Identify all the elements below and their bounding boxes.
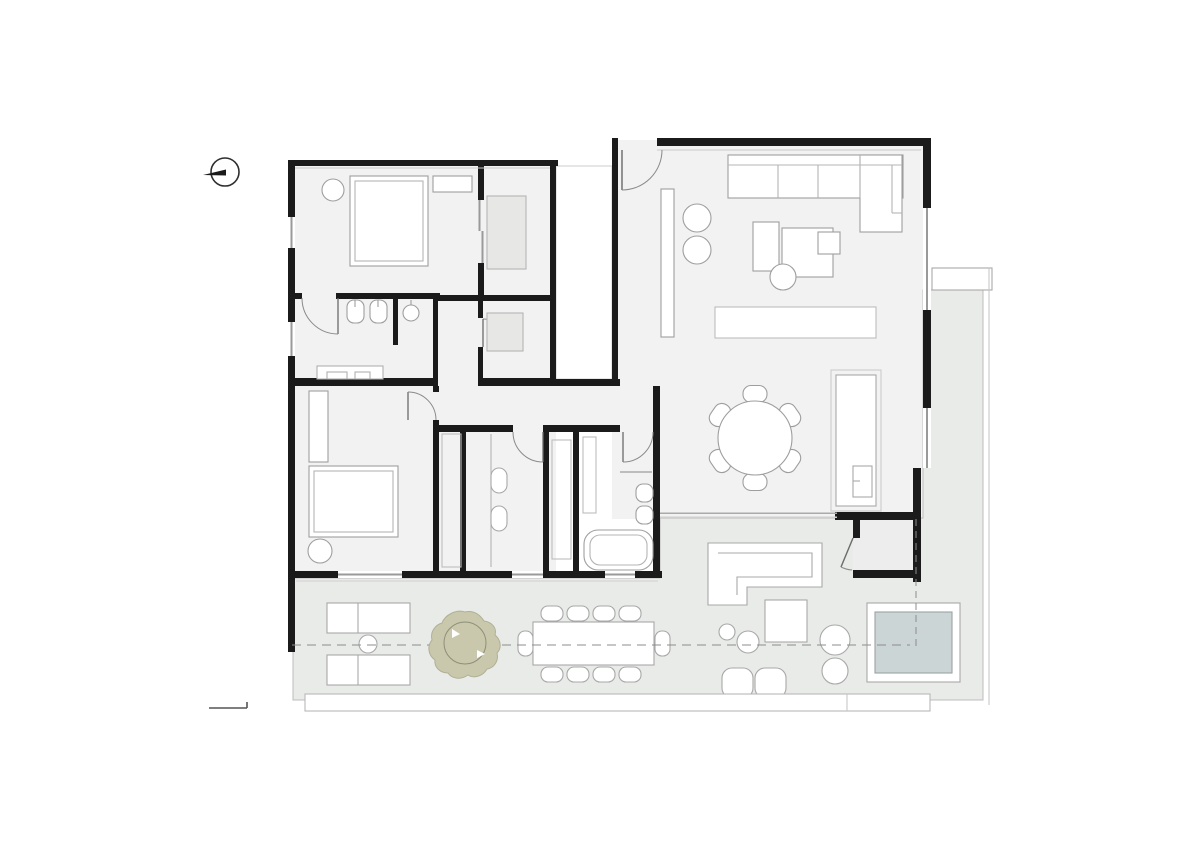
living-bench	[715, 307, 876, 338]
bed2-pouf	[308, 539, 332, 563]
wall-hall-south-a	[433, 425, 513, 432]
wall-band-east	[478, 378, 556, 386]
window-south-1-pane	[338, 574, 402, 576]
north-arrow-needle	[203, 170, 226, 176]
wall-vestibule-south	[853, 570, 921, 578]
terrace-dining-chair-e	[655, 631, 670, 656]
pool-water	[875, 612, 952, 673]
wall-vestibule-north	[835, 512, 915, 520]
bath1-toilet	[403, 305, 419, 321]
living-pouf1	[683, 204, 711, 232]
walkin-hanger2	[491, 506, 507, 531]
bed1-frame	[350, 176, 428, 266]
wall-wing2-east	[653, 386, 660, 571]
sliding-door-panel-a	[479, 200, 481, 231]
wall-smallroom-north	[478, 295, 556, 301]
sofa-chaise	[860, 155, 902, 232]
wall-living-west	[612, 138, 618, 386]
wall-bed2-east-a	[433, 386, 439, 392]
terrace-dining-chair-w	[518, 631, 533, 656]
window-west-2-pane	[291, 322, 293, 356]
floor-plan-drawing	[0, 0, 1200, 848]
lounger-pair-a	[327, 603, 410, 633]
wall-bed1-bath-stub	[295, 293, 302, 299]
vestibule-floor	[853, 519, 915, 572]
wall-bed2-east-b	[433, 420, 439, 572]
outdoor-stool-3	[820, 625, 850, 655]
outdoor-stool-1	[719, 624, 735, 640]
bedroom2-wardrobe	[309, 391, 328, 462]
bed1-nightstand	[322, 179, 344, 201]
wall-south-a	[288, 571, 338, 578]
floor-hallway	[438, 386, 660, 426]
bath2-sink	[636, 506, 653, 524]
terrace-dining-chair-b2	[567, 667, 589, 682]
window-east-2-pane	[926, 408, 928, 468]
floor-plan-sheet	[0, 0, 1200, 848]
window-south-2-pane	[512, 574, 543, 576]
dining-chair-s	[743, 474, 767, 491]
wall-south-d	[635, 571, 662, 578]
bed1-shelf	[433, 176, 472, 192]
bath2-tub	[584, 530, 653, 570]
bath2-cabinet	[583, 437, 596, 513]
wall-bath1-east	[433, 295, 438, 386]
wall-slot-east	[573, 425, 579, 572]
wall-living-east-a	[923, 138, 931, 208]
glass-south-living-b	[660, 517, 837, 519]
wall-living-east-b	[923, 310, 931, 408]
planter-box	[932, 268, 992, 290]
living-pouf2	[683, 236, 711, 264]
living-shelf	[661, 189, 674, 337]
wall-south-b	[402, 571, 512, 578]
smallroom-wardrobe	[487, 313, 523, 351]
wall-hall-south-b	[543, 425, 620, 432]
desk-side-table	[818, 232, 840, 254]
wall-bath1-partition	[393, 298, 398, 345]
dining-table	[718, 401, 792, 475]
window-west-1-pane	[291, 217, 293, 248]
outdoor-stool-4	[822, 658, 848, 684]
bed2-frame	[309, 466, 398, 537]
wall-smallroom-west-b	[478, 347, 483, 378]
terrace-dining-chair-t1	[541, 606, 563, 621]
terrace-dining-chair-b1	[541, 667, 563, 682]
lounger-side-table	[359, 635, 377, 653]
wall-vestibule-jamb	[853, 520, 860, 538]
wall-living-north	[657, 138, 930, 146]
wall-lightwell-south	[550, 379, 620, 386]
wall-smallroom-west-a	[478, 301, 483, 318]
window-east-1-pane	[926, 208, 928, 310]
terrace-dining-chair-t4	[619, 606, 641, 621]
lightwell-court	[556, 166, 612, 379]
terrace-dining-chair-t2	[567, 606, 589, 621]
wall-west-c	[288, 356, 295, 652]
terrace-dining-chair-b3	[593, 667, 615, 682]
wall-closet-a	[478, 163, 484, 200]
window-south-3-pane	[605, 574, 635, 576]
dining-chair-n	[743, 386, 767, 403]
wall-closet-b	[478, 263, 484, 296]
desk-rug	[753, 222, 779, 271]
sliding-door-panel-b	[482, 231, 484, 263]
outdoor-square-table	[765, 600, 807, 642]
bath2-toilet	[636, 484, 653, 502]
terrace-dining-table	[533, 622, 654, 665]
wall-corridor-north	[438, 295, 478, 301]
walkin-hanger1	[491, 468, 507, 493]
kitchen-island	[836, 375, 876, 506]
terrace-dining-chair-t3	[593, 606, 615, 621]
wall-south-c	[543, 571, 605, 578]
closet-wardrobe	[487, 196, 526, 269]
wall-west-b	[288, 248, 295, 322]
desk-chair	[770, 264, 796, 290]
wall-vestibule-east	[913, 468, 921, 582]
wall-west-a	[288, 160, 295, 217]
wall-closetcorr-east	[543, 425, 549, 572]
glass-south-living-a	[660, 513, 837, 515]
outdoor-stool-2	[737, 631, 759, 653]
lounger-pair-b	[327, 655, 410, 685]
wall-wing-east	[550, 160, 556, 385]
wall-bed1-bath	[336, 293, 440, 299]
terrace-curb	[305, 694, 930, 711]
wall-wing-north	[288, 160, 558, 166]
terrace-dining-chair-b4	[619, 667, 641, 682]
